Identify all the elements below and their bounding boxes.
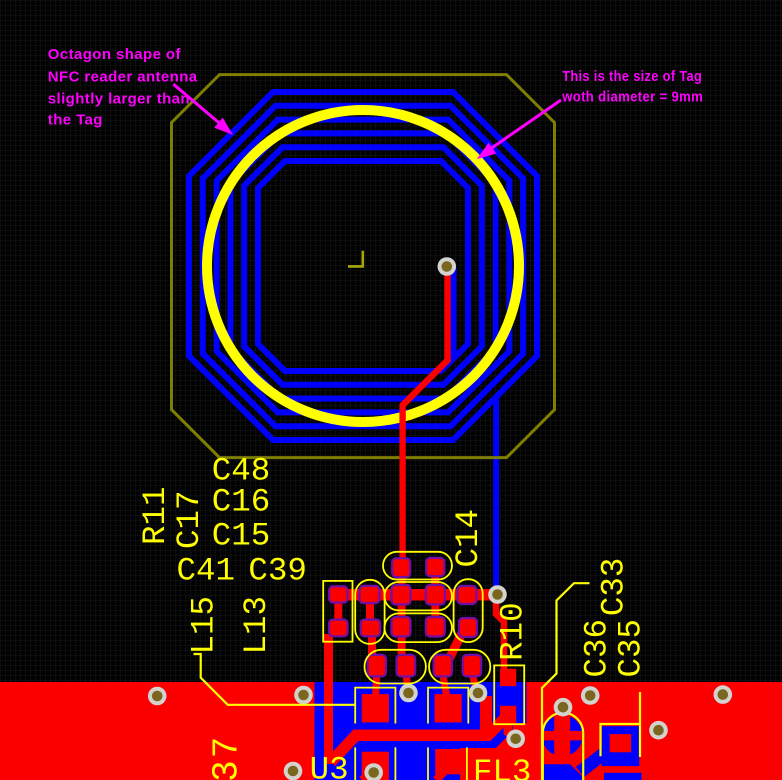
- svg-text:L15: L15: [185, 596, 222, 655]
- svg-text:C15: C15: [212, 518, 271, 555]
- svg-text:C36: C36: [579, 619, 616, 678]
- svg-text:R10: R10: [495, 602, 532, 661]
- svg-text:C41: C41: [177, 553, 236, 590]
- svg-text:C14: C14: [450, 509, 487, 568]
- svg-text:woth diameter = 9mm: woth diameter = 9mm: [561, 88, 703, 105]
- svg-text:C35: C35: [613, 619, 650, 678]
- svg-text:37: 37: [207, 735, 248, 780]
- svg-text:R11: R11: [137, 486, 174, 545]
- svg-text:C33: C33: [596, 558, 633, 617]
- svg-text:slightly larger than: slightly larger than: [48, 90, 190, 107]
- svg-text:C39: C39: [248, 553, 307, 590]
- svg-text:C16: C16: [212, 484, 271, 521]
- svg-text:C17: C17: [171, 490, 208, 549]
- svg-text:the Tag: the Tag: [48, 112, 103, 129]
- svg-text:Octagon shape of: Octagon shape of: [48, 46, 182, 63]
- svg-text:NFC reader antenna: NFC reader antenna: [48, 69, 198, 86]
- svg-text:L13: L13: [238, 596, 275, 655]
- svg-text:This is the size of Tag: This is the size of Tag: [562, 68, 702, 85]
- svg-text:U3: U3: [310, 752, 349, 780]
- svg-text:FL3: FL3: [473, 754, 532, 780]
